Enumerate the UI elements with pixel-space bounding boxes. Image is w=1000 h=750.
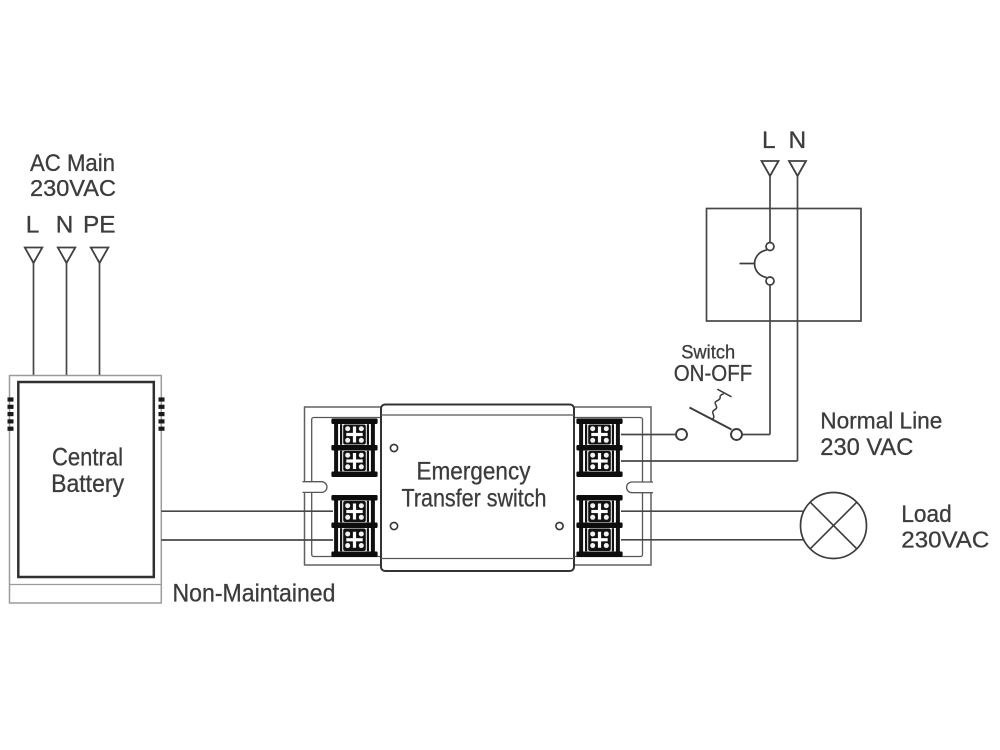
svg-text:AC Main: AC Main [30,150,115,177]
svg-text:Transfer switch: Transfer switch [402,485,547,513]
svg-text:Battery: Battery [51,471,125,498]
svg-text:Central: Central [52,445,123,472]
svg-text:N: N [789,127,807,154]
svg-text:Normal Line: Normal Line [820,408,942,434]
svg-text:230VAC: 230VAC [901,527,989,553]
svg-text:PE: PE [83,211,116,238]
svg-text:Load: Load [901,501,952,528]
svg-text:L: L [762,127,776,154]
svg-text:L: L [26,211,40,238]
svg-text:N: N [56,211,74,238]
svg-text:Non-Maintained: Non-Maintained [173,580,336,608]
svg-text:Emergency: Emergency [417,458,531,486]
svg-text:230VAC: 230VAC [30,175,116,201]
svg-text:230 VAC: 230 VAC [820,434,913,461]
svg-text:ON-OFF: ON-OFF [674,360,753,386]
